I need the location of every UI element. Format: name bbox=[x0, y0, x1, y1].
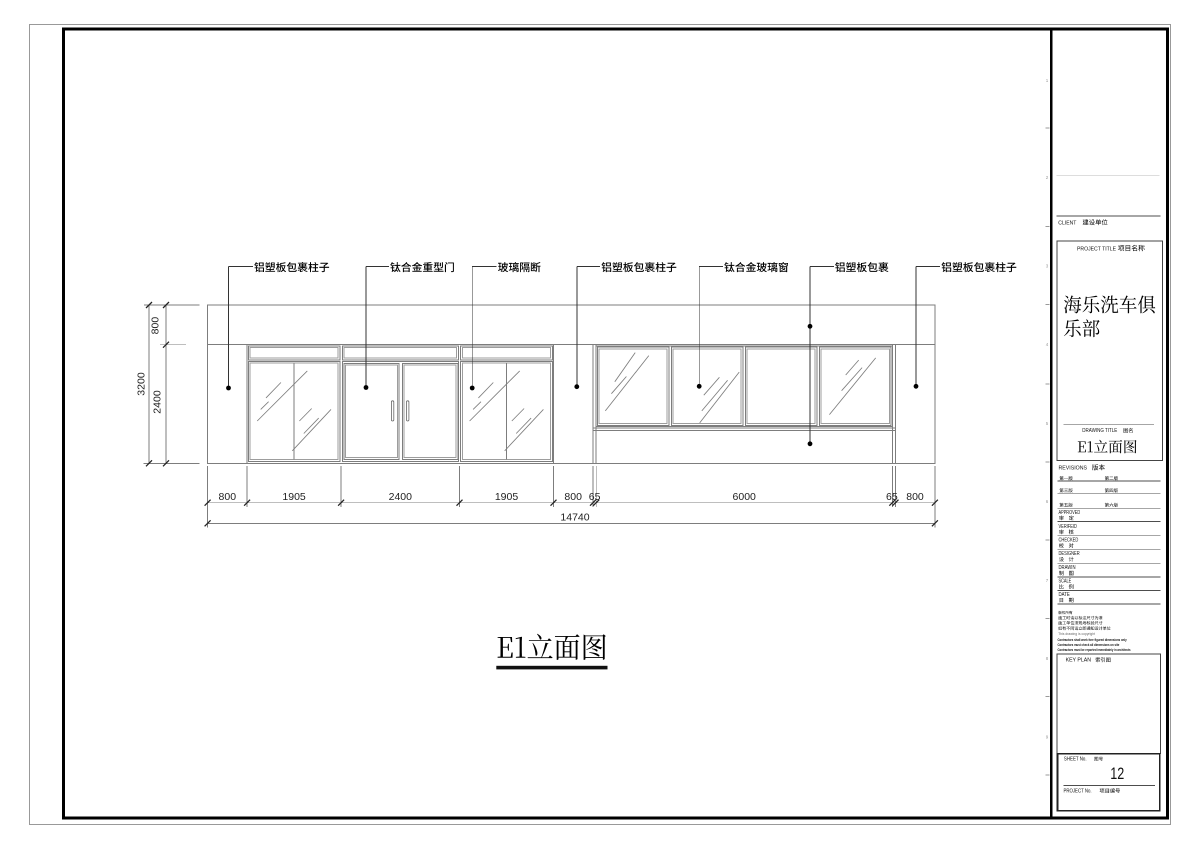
svg-text:VERIFEID: VERIFEID bbox=[1059, 524, 1077, 530]
svg-text:KEY PLAN: KEY PLAN bbox=[1066, 657, 1091, 663]
svg-text:1905: 1905 bbox=[282, 491, 306, 503]
svg-text:800: 800 bbox=[219, 491, 237, 503]
svg-text:DESIGNER: DESIGNER bbox=[1059, 551, 1080, 557]
svg-text:PROJECT TITLE: PROJECT TITLE bbox=[1077, 246, 1116, 252]
svg-text:14740: 14740 bbox=[560, 511, 589, 523]
svg-text:SHEET No.: SHEET No. bbox=[1064, 756, 1087, 762]
svg-text:65: 65 bbox=[589, 491, 601, 503]
svg-text:CLIENT: CLIENT bbox=[1058, 220, 1076, 226]
svg-text:Contractors must be reported i: Contractors must be reported immediately… bbox=[1058, 648, 1131, 652]
svg-text:PROJECT No.: PROJECT No. bbox=[1064, 788, 1092, 794]
svg-text:12: 12 bbox=[1110, 765, 1124, 783]
svg-text:6000: 6000 bbox=[733, 491, 757, 503]
svg-text:DATE: DATE bbox=[1059, 592, 1070, 598]
svg-text:DRAWING TITLE: DRAWING TITLE bbox=[1082, 428, 1117, 434]
svg-text:APPROVED: APPROVED bbox=[1059, 510, 1081, 516]
svg-text:Contractors must check all dim: Contractors must check all dimensions on… bbox=[1058, 643, 1120, 647]
svg-text:2400: 2400 bbox=[389, 491, 413, 503]
svg-text:CHECKED: CHECKED bbox=[1059, 538, 1079, 544]
svg-text:DRAWIN: DRAWIN bbox=[1059, 565, 1076, 571]
svg-text:800: 800 bbox=[564, 491, 582, 503]
svg-text:800: 800 bbox=[150, 317, 162, 335]
svg-text:65: 65 bbox=[886, 491, 898, 503]
svg-text:3200: 3200 bbox=[135, 372, 147, 396]
svg-text:2400: 2400 bbox=[152, 390, 164, 414]
svg-text:Contractors shall work fore fi: Contractors shall work fore figured dime… bbox=[1058, 638, 1127, 642]
svg-text:1905: 1905 bbox=[495, 491, 519, 503]
svg-text:REVISIONS: REVISIONS bbox=[1059, 466, 1088, 472]
svg-text:SCALE: SCALE bbox=[1059, 578, 1072, 584]
svg-text:800: 800 bbox=[906, 491, 924, 503]
svg-text:This drawing is copyright: This drawing is copyright bbox=[1058, 632, 1095, 636]
